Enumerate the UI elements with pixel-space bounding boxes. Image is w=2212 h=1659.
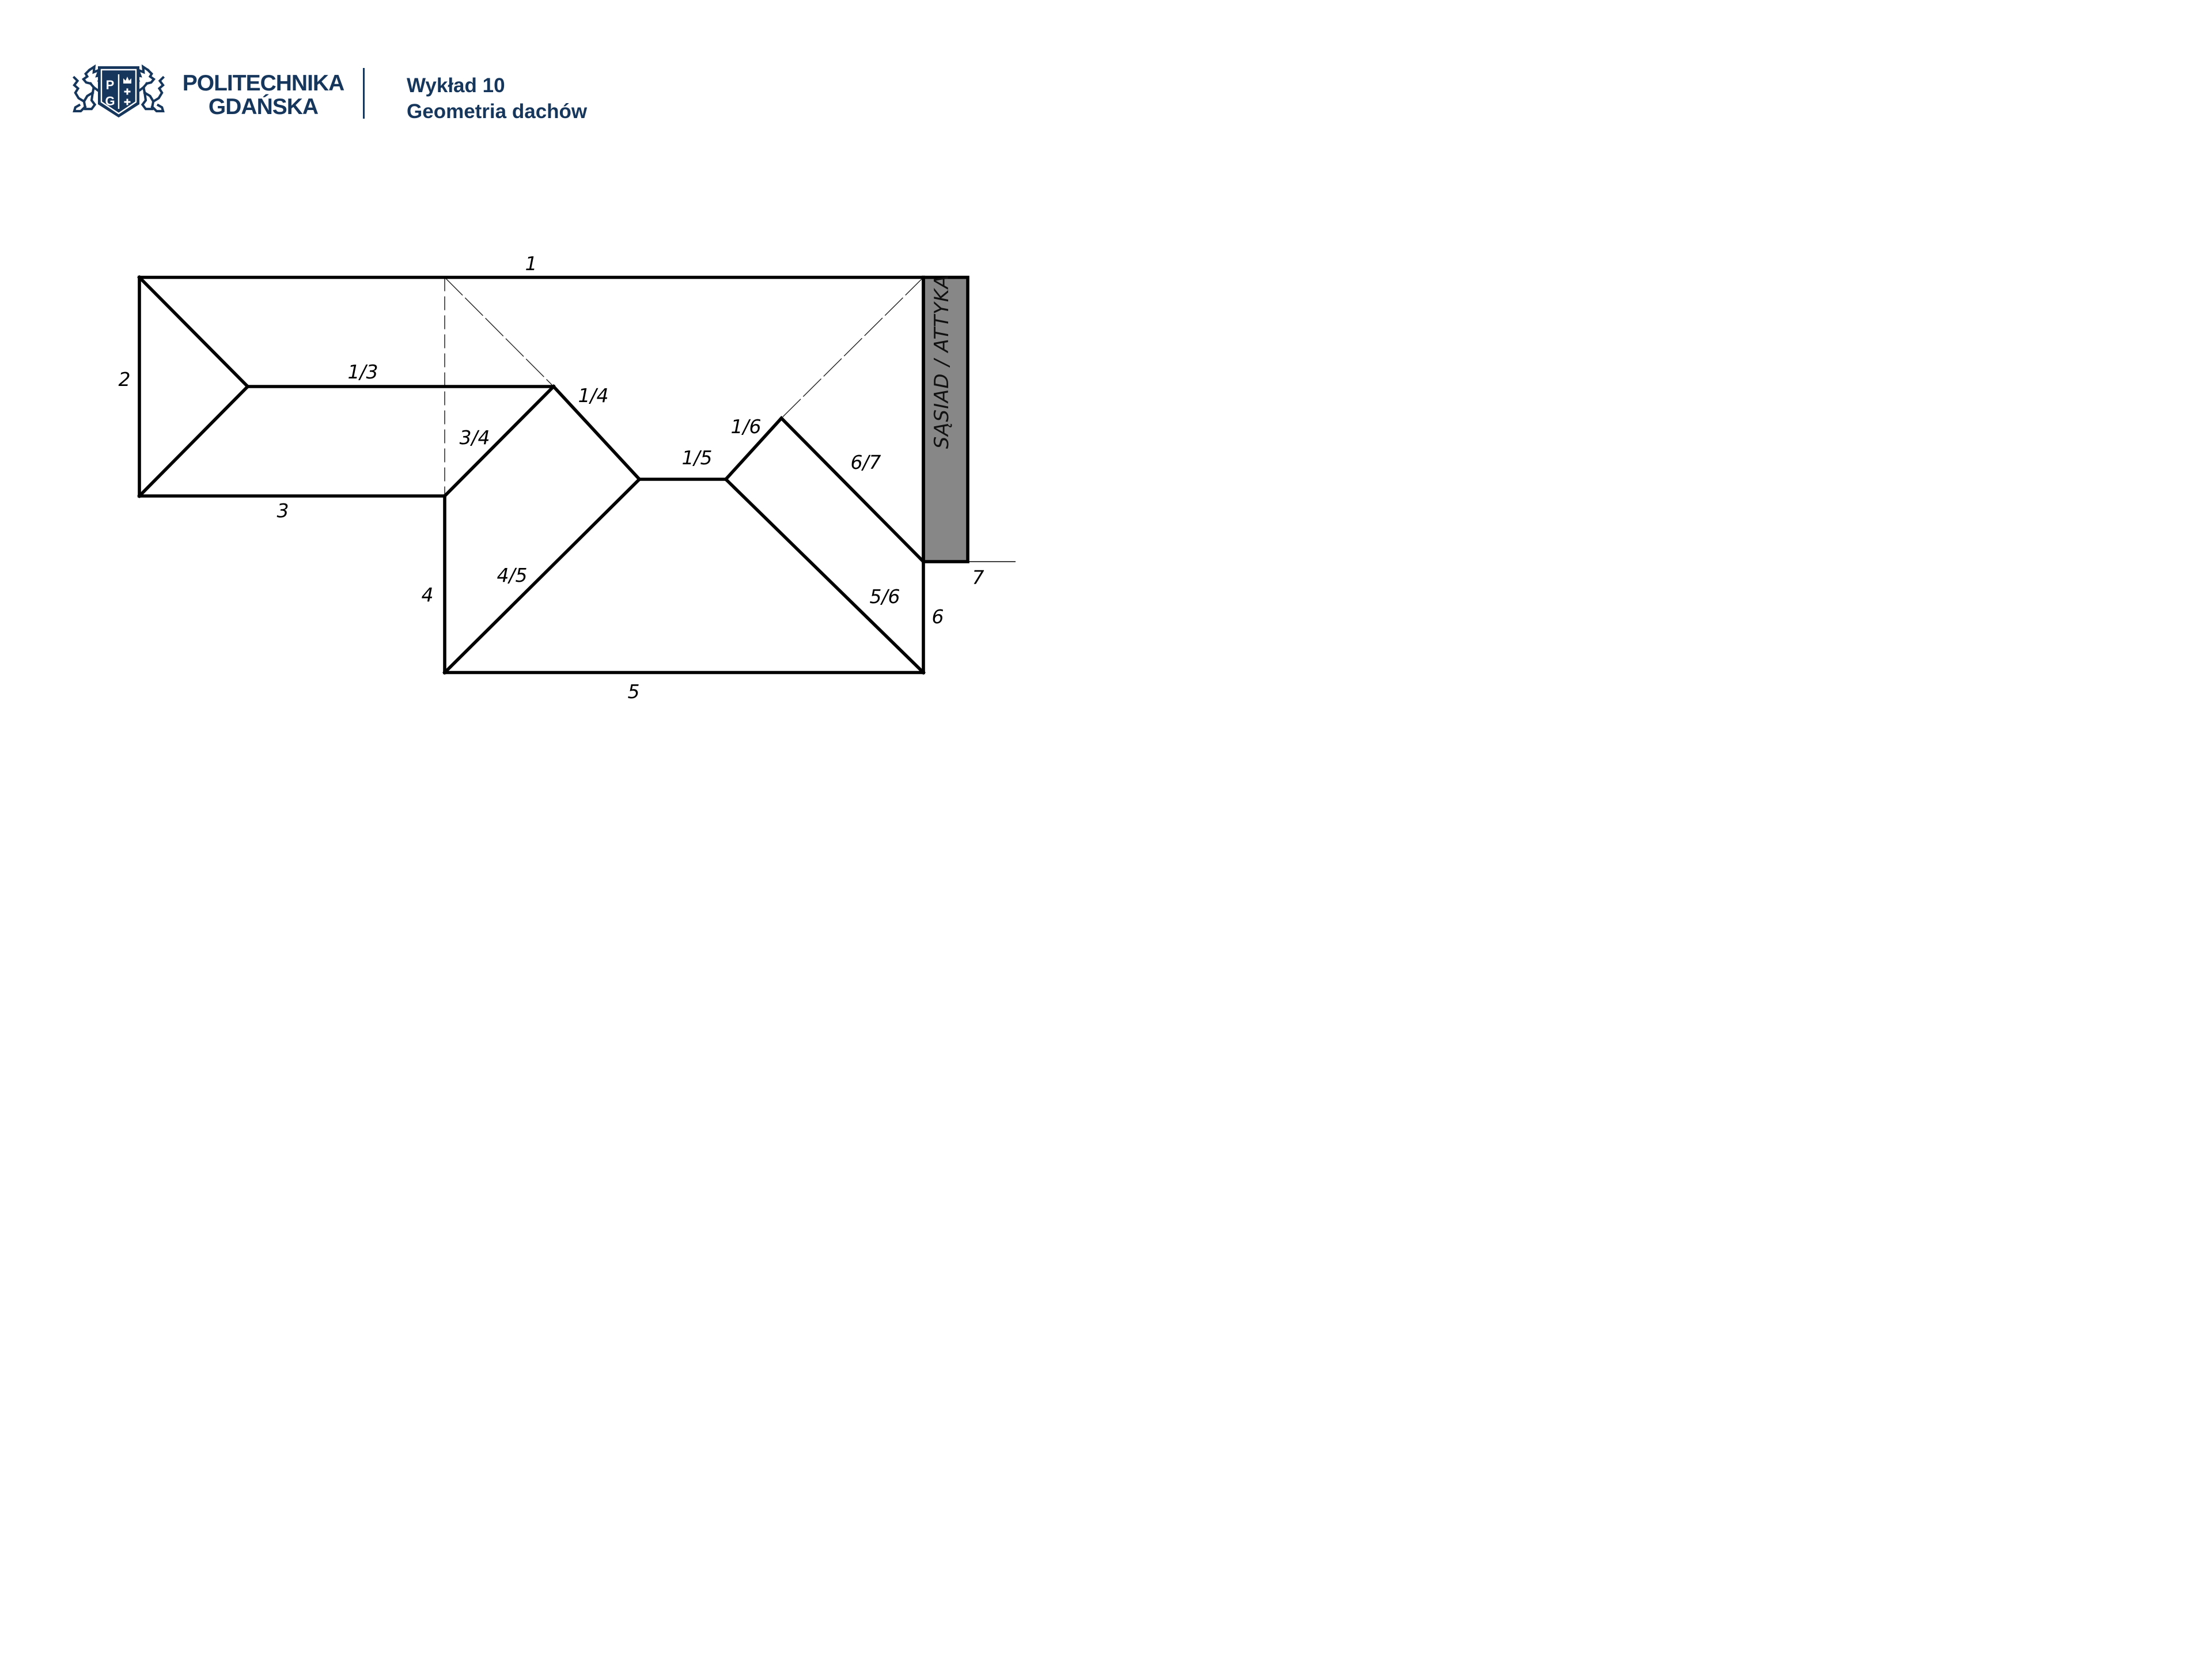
roof-label-5-6: 5/6	[869, 585, 900, 608]
eave-label-1: 1	[525, 252, 537, 275]
eave-label-4: 4	[422, 584, 434, 606]
valley-5-6	[726, 479, 923, 673]
hip-top-left	[139, 278, 248, 387]
roof-label-1-4: 1/4	[578, 384, 608, 407]
attyka-band-label: SĄSIAD / ATTYKA	[930, 275, 953, 449]
eave-label-5: 5	[628, 680, 640, 703]
eave-label-7: 7	[972, 566, 984, 589]
eave-label-6: 6	[932, 605, 944, 628]
eave-label-2: 2	[119, 368, 131, 391]
eave-label-3: 3	[277, 499, 289, 522]
roof-label-3-4: 3/4	[459, 426, 490, 449]
roof-plan: SĄSIAD / ATTYKA 1 2 3 4 5 6 7 1/3	[0, 0, 1106, 829]
construction-line-diagonal-right	[782, 278, 924, 419]
valley-4-5	[445, 479, 639, 673]
roof-label-1-5: 1/5	[681, 446, 712, 469]
hip-bottom-left	[139, 387, 248, 496]
roof-label-6-7: 6/7	[850, 451, 881, 474]
ridge-6-7	[782, 418, 924, 562]
roof-label-1-6: 1/6	[730, 415, 761, 438]
roof-label-4-5: 4/5	[497, 564, 527, 586]
roof-label-1-3: 1/3	[347, 361, 378, 383]
construction-line-diagonal-left	[445, 278, 554, 387]
slide: P G POLITECHNIKA GDAŃSKA Wykład 10	[0, 0, 1106, 829]
